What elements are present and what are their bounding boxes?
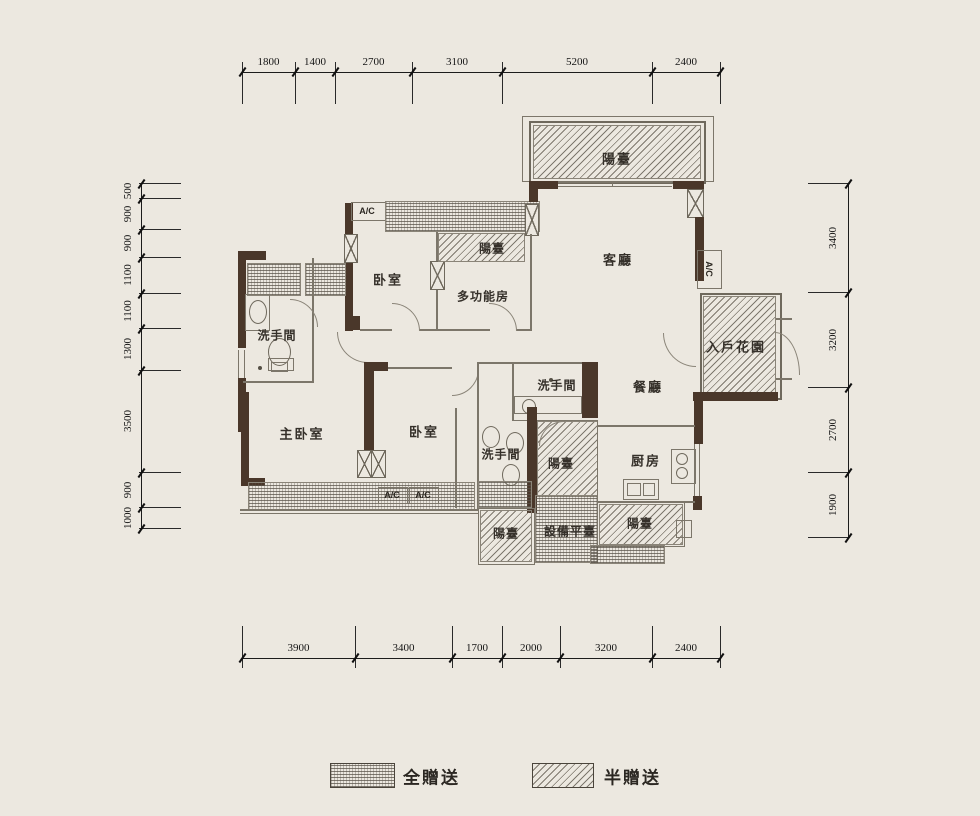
- window-icon: [344, 234, 358, 263]
- dimension-tick: [845, 533, 853, 543]
- dimension-extension: [452, 626, 453, 668]
- dimension-value: 5200: [566, 56, 588, 68]
- room-label-balcony-br: 陽臺: [627, 515, 653, 532]
- dimension-value: 1400: [304, 56, 326, 68]
- dimension-extension: [808, 292, 850, 293]
- dimension-line: [848, 183, 849, 537]
- dimension-value: 1800: [258, 56, 280, 68]
- dimension-extension: [808, 183, 850, 184]
- door-arc: [337, 332, 368, 363]
- ac-label: A/C: [415, 490, 431, 500]
- dimension-line: [141, 183, 142, 528]
- dimension-value: 1300: [122, 338, 134, 360]
- room-label-kitchen: 厨房: [631, 451, 661, 470]
- dimension-value: 3500: [122, 410, 134, 432]
- legend-label-half-gift: 半贈送: [604, 764, 661, 789]
- outline: [240, 513, 478, 514]
- dimension-value: 900: [122, 205, 134, 222]
- door-arc: [663, 333, 696, 367]
- dimension-value: 2400: [675, 642, 697, 654]
- dimension-line: [242, 658, 720, 659]
- sink-basin: [627, 483, 641, 496]
- gift-strip-top: [385, 201, 540, 232]
- dimension-value: 3200: [595, 642, 617, 654]
- dimension-value: 3400: [827, 227, 839, 249]
- room-label-equipment: 設備平臺: [544, 523, 596, 540]
- door-arc: [452, 369, 479, 396]
- ac-label: A/C: [704, 261, 714, 277]
- dimension-extension: [139, 183, 181, 184]
- dimension-value: 2400: [675, 56, 697, 68]
- ac-label: A/C: [359, 206, 375, 216]
- partition-line: [530, 234, 532, 330]
- dimension-tick: [138, 524, 146, 534]
- room-label-bath-left: 洗手間: [257, 327, 296, 344]
- dimension-extension: [808, 537, 850, 538]
- wall-segment: [345, 203, 353, 331]
- window-icon: [357, 450, 372, 478]
- partition-line: [477, 362, 582, 364]
- dimension-extension: [139, 198, 181, 199]
- dimension-value: 500: [122, 182, 134, 199]
- entry-door-arc: [775, 332, 800, 375]
- gift-band-bottom: [248, 482, 475, 511]
- window-line: [244, 350, 245, 378]
- window-icon: [525, 204, 539, 236]
- dimension-value: 3100: [446, 56, 468, 68]
- dimension-value: 1700: [466, 642, 488, 654]
- legend-swatch-half-gift: [532, 763, 594, 788]
- dimension-extension: [139, 293, 181, 294]
- room-label-balcony-upper: 陽臺: [479, 240, 505, 257]
- wall-segment: [364, 362, 388, 371]
- dimension-extension: [139, 507, 181, 508]
- wall-segment: [241, 392, 249, 486]
- wall-segment: [582, 362, 598, 418]
- wall-segment: [694, 401, 703, 444]
- wall-segment: [693, 392, 778, 401]
- dimension-extension: [502, 626, 503, 668]
- legend-label-full-gift: 全贈送: [403, 764, 460, 789]
- window-icon: [430, 261, 445, 290]
- wall-segment: [345, 316, 360, 330]
- room-label-balcony-bl: 陽臺: [493, 525, 519, 542]
- partition-line: [388, 367, 452, 369]
- drain-box: [676, 520, 692, 538]
- sliding-door-line: [558, 182, 672, 183]
- dimension-extension: [652, 626, 653, 668]
- partition-line: [243, 381, 314, 383]
- partition-line: [516, 329, 532, 331]
- door-arc: [392, 303, 420, 331]
- dimension-extension: [139, 229, 181, 230]
- sink-icon: [249, 300, 267, 324]
- dimension-extension: [808, 387, 850, 388]
- floor-plan-canvas: 1800140027003100520024003900340017002000…: [0, 0, 980, 816]
- dimension-extension: [139, 528, 181, 529]
- partition-line: [455, 408, 457, 508]
- dimension-extension: [560, 626, 561, 668]
- partition-line: [597, 425, 695, 427]
- dimension-value: 3900: [288, 642, 310, 654]
- dimension-value: 2000: [520, 642, 542, 654]
- room-label-dining: 餐廳: [633, 377, 663, 396]
- burner-icon: [676, 453, 688, 465]
- dimension-extension: [139, 328, 181, 329]
- dimension-value: 2700: [827, 419, 839, 441]
- window-icon: [371, 450, 386, 478]
- drain-dot: [258, 366, 262, 370]
- door-arc: [489, 303, 517, 331]
- ac-label: A/C: [384, 490, 400, 500]
- dimension-extension: [242, 626, 243, 668]
- dimension-value: 2700: [363, 56, 385, 68]
- room-label-bedroom-upper: 卧室: [373, 270, 403, 289]
- legend-swatch-full-gift: [330, 763, 395, 788]
- partition-line: [360, 329, 392, 331]
- dimension-extension: [139, 472, 181, 473]
- window-line: [238, 350, 239, 378]
- dimension-value: 1900: [827, 494, 839, 516]
- room-label-entry-garden: 入戶花園: [706, 337, 766, 356]
- room-label-bath-top: 洗手間: [537, 377, 576, 394]
- room-label-master: 主卧室: [279, 424, 324, 443]
- shelf: [268, 358, 294, 371]
- room-label-balcony-top: 陽臺: [602, 149, 632, 168]
- dimension-value: 1100: [122, 264, 134, 286]
- room-label-multi-room: 多功能房: [457, 288, 509, 305]
- gift-patch-bath: [478, 481, 532, 508]
- burner-icon: [676, 467, 688, 479]
- outline: [240, 509, 478, 511]
- partition-line: [419, 329, 490, 331]
- dimension-extension: [720, 626, 721, 668]
- room-label-bedroom-lower: 卧室: [409, 422, 439, 441]
- dimension-extension: [139, 257, 181, 258]
- wall-segment: [673, 181, 704, 189]
- window-line: [699, 444, 700, 496]
- dimension-extension: [808, 472, 850, 473]
- gift-strip-br: [590, 545, 665, 564]
- wall-segment: [529, 181, 538, 202]
- dimension-extension: [139, 370, 181, 371]
- dimension-extension: [355, 626, 356, 668]
- dimension-value: 1100: [122, 300, 134, 322]
- dimension-value: 900: [122, 481, 134, 498]
- room-label-bath-lower: 洗手間: [481, 446, 520, 463]
- window-icon: [687, 189, 704, 218]
- sliding-door-tick: [612, 182, 613, 187]
- dimension-line: [242, 72, 720, 73]
- wall-segment: [364, 371, 374, 450]
- wall-segment: [693, 496, 702, 510]
- dimension-value: 1000: [122, 507, 134, 529]
- dimension-value: 3200: [827, 329, 839, 351]
- dimension-value: 900: [122, 235, 134, 252]
- room-label-balcony-center: 陽臺: [548, 455, 574, 472]
- dimension-value: 3400: [393, 642, 415, 654]
- entry-stub: [776, 378, 792, 380]
- sink-basin: [643, 483, 655, 496]
- sliding-door-line: [558, 186, 672, 187]
- gift-strip-bath: [247, 263, 301, 296]
- entry-stub: [776, 318, 792, 320]
- room-label-living: 客廳: [603, 250, 633, 269]
